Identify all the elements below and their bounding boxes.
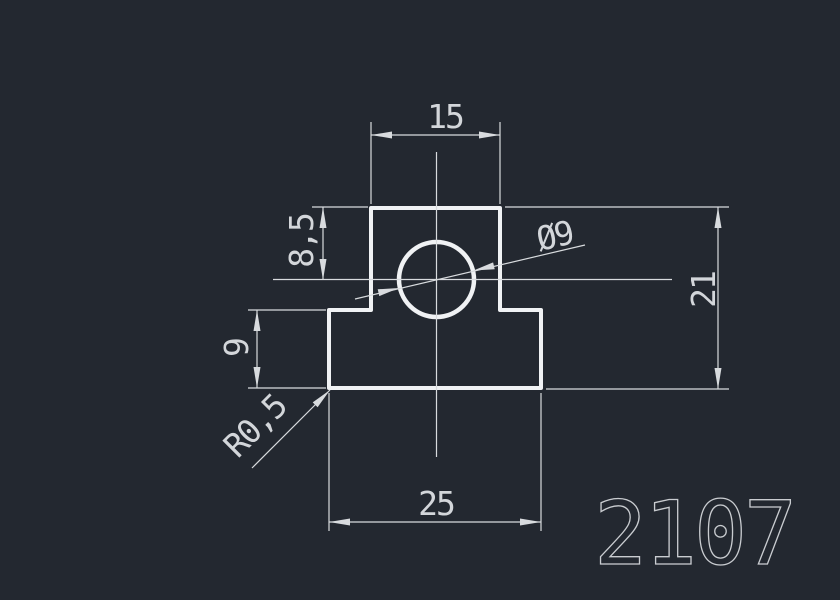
dim-base-width: 25 xyxy=(329,393,541,531)
dimension-arrow xyxy=(715,207,722,228)
dim-top-width: 15 xyxy=(371,97,500,204)
hole-diameter-leader: Ø9 xyxy=(355,213,585,299)
dim-total-height-label: 21 xyxy=(684,272,723,308)
dim-upper-height: 8,5 xyxy=(282,207,368,280)
dim-top-width-label: 15 xyxy=(427,97,463,136)
leader-arrow xyxy=(378,288,399,296)
dimension-arrow xyxy=(329,519,350,526)
dimension-arrow xyxy=(254,367,261,388)
part-number-label: 2107 xyxy=(594,482,794,585)
leader-arrow xyxy=(474,262,495,270)
dim-upper-height-label: 8,5 xyxy=(282,214,321,268)
dimension-arrow xyxy=(479,132,500,139)
dimension-arrow xyxy=(520,519,541,526)
dim-base-height-label: 9 xyxy=(217,339,256,357)
dimension-arrow xyxy=(371,132,392,139)
cad-viewport[interactable]: 15 8,5 9 21 xyxy=(0,0,840,600)
fillet-radius-label: R0,5 xyxy=(216,387,294,465)
leader-arrow xyxy=(313,390,330,407)
fillet-radius-leader: R0,5 xyxy=(216,387,330,468)
dimension-arrow xyxy=(254,310,261,331)
cad-drawing-screen: 15 8,5 9 21 xyxy=(0,0,840,600)
dim-base-width-label: 25 xyxy=(418,484,454,523)
hole-diameter-label: Ø9 xyxy=(533,213,577,259)
dim-base-height: 9 xyxy=(217,310,326,388)
dimension-arrow xyxy=(715,368,722,389)
